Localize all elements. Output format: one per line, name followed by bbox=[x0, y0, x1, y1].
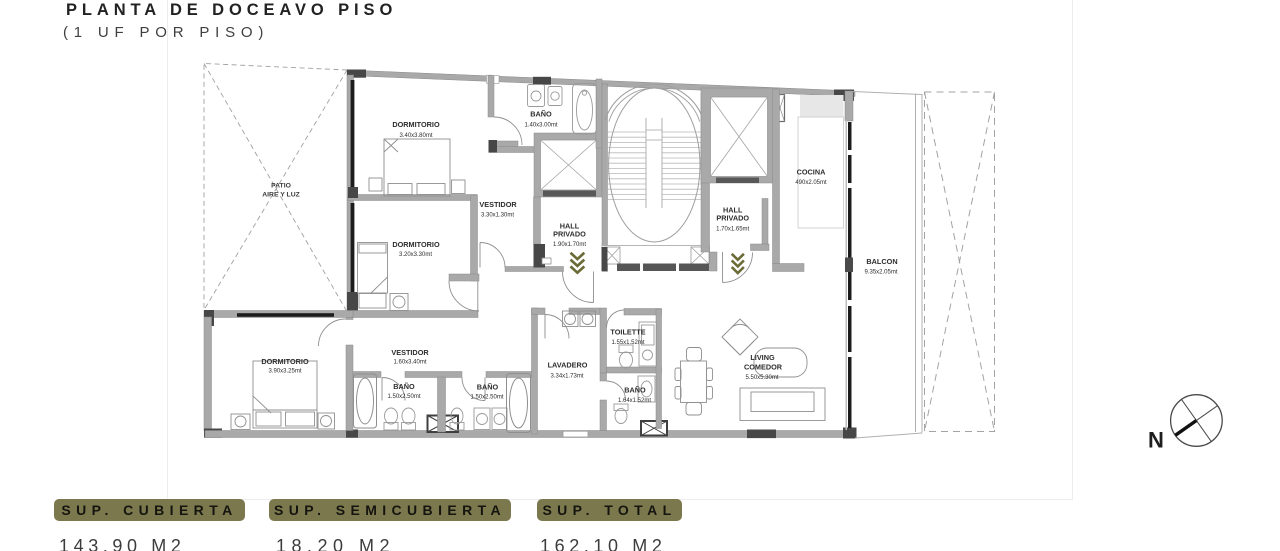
svg-text:5.50x5.30mt: 5.50x5.30mt bbox=[745, 375, 778, 381]
svg-text:BAÑO: BAÑO bbox=[477, 383, 499, 392]
svg-text:BALCON: BALCON bbox=[866, 257, 897, 266]
svg-text:VESTIDOR: VESTIDOR bbox=[479, 200, 517, 209]
svg-text:PRIVADO: PRIVADO bbox=[716, 214, 749, 223]
svg-text:BAÑO: BAÑO bbox=[393, 382, 415, 391]
svg-text:3.20x3.30mt: 3.20x3.30mt bbox=[399, 252, 432, 258]
svg-text:LIVING: LIVING bbox=[750, 353, 775, 362]
svg-text:COCINA: COCINA bbox=[797, 168, 827, 177]
svg-text:1.60x3.40mt: 1.60x3.40mt bbox=[393, 360, 426, 366]
svg-text:3.34x1.73mt: 3.34x1.73mt bbox=[550, 374, 583, 380]
svg-text:1.55x1.52mt: 1.55x1.52mt bbox=[611, 340, 644, 346]
svg-text:1.50x2.50mt: 1.50x2.50mt bbox=[470, 395, 503, 401]
svg-text:LAVADERO: LAVADERO bbox=[548, 361, 588, 370]
svg-text:BAÑO: BAÑO bbox=[530, 110, 552, 119]
svg-text:DORMITORIO: DORMITORIO bbox=[392, 240, 440, 249]
svg-text:COMEDOR: COMEDOR bbox=[744, 363, 783, 372]
svg-text:AIRE Y LUZ: AIRE Y LUZ bbox=[262, 192, 300, 199]
svg-text:1.90x1.70mt: 1.90x1.70mt bbox=[553, 242, 586, 248]
svg-text:1.70x1.65mt: 1.70x1.65mt bbox=[716, 227, 749, 233]
svg-text:9.35x2.05mt: 9.35x2.05mt bbox=[864, 270, 897, 276]
svg-text:1.50x2.50mt: 1.50x2.50mt bbox=[387, 394, 420, 400]
svg-text:3.90x3.25mt: 3.90x3.25mt bbox=[268, 369, 301, 375]
svg-text:1.40x3.00mt: 1.40x3.00mt bbox=[524, 123, 557, 129]
svg-text:1.64x1.52mt: 1.64x1.52mt bbox=[618, 398, 651, 404]
svg-text:TOILETTE: TOILETTE bbox=[610, 328, 645, 337]
svg-text:DORMITORIO: DORMITORIO bbox=[261, 357, 309, 366]
svg-text:N: N bbox=[1148, 428, 1164, 453]
svg-text:VESTIDOR: VESTIDOR bbox=[391, 348, 429, 357]
svg-text:DORMITORIO: DORMITORIO bbox=[392, 120, 440, 129]
svg-text:PRIVADO: PRIVADO bbox=[553, 230, 586, 239]
svg-text:BAÑO: BAÑO bbox=[624, 386, 646, 395]
svg-text:3.30x1.30mt: 3.30x1.30mt bbox=[481, 213, 514, 219]
svg-text:3.40x3.80mt: 3.40x3.80mt bbox=[399, 133, 432, 139]
svg-text:490x2.05mt: 490x2.05mt bbox=[795, 180, 827, 186]
svg-text:PATIO: PATIO bbox=[271, 183, 291, 190]
